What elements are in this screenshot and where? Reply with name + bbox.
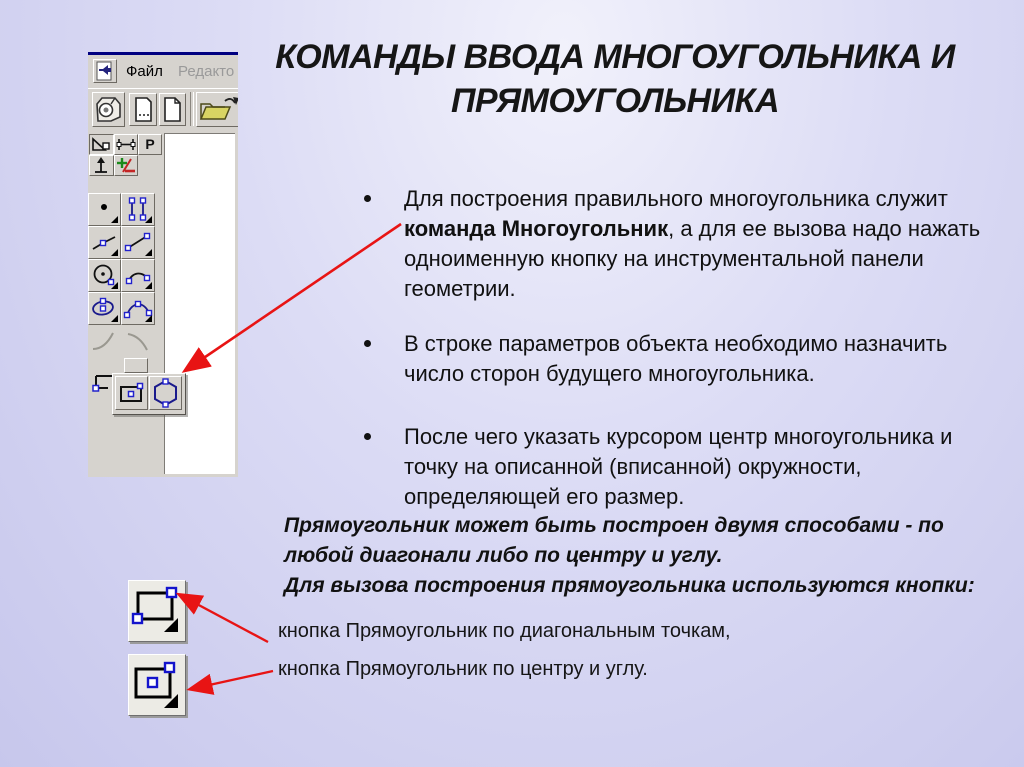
plus-minus-icon[interactable]	[114, 155, 138, 176]
rectangle-by-diagonal-points-icon	[129, 581, 183, 639]
polygon-icon[interactable]	[149, 376, 182, 410]
kompas-document-icon[interactable]	[93, 59, 117, 83]
bullet-dot	[364, 195, 371, 202]
bullet-dot	[364, 433, 371, 440]
note-line-2: Для вызова построения прямоугольника исп…	[284, 571, 1006, 601]
flyout-stub	[124, 358, 148, 373]
arc-icon[interactable]	[121, 259, 155, 292]
new-sheet-icon[interactable]	[159, 93, 186, 126]
fillet-icon[interactable]	[88, 325, 121, 358]
curve-icon[interactable]	[121, 292, 155, 325]
p-letter-icon[interactable]: P	[138, 134, 162, 155]
caption-diagonal-button: кнопка Прямоугольник по диагональным точ…	[278, 620, 731, 643]
bullet-polygon-command: Для построения правильного многоугольник…	[358, 184, 998, 304]
kompas-screenshot: Файл Редакто	[88, 52, 238, 477]
bullet-text: Для построения правильного многоугольник…	[404, 186, 980, 301]
rectangle-by-diagonal-points-button[interactable]	[128, 580, 186, 642]
standard-toolbar	[88, 88, 238, 131]
caption-center-button: кнопка Прямоугольник по центру и углу.	[278, 658, 648, 681]
menu-item-edit[interactable]: Редакто	[178, 63, 234, 80]
toolbar-separator	[190, 92, 194, 126]
bullet-text: После чего указать курсором центр многоу…	[404, 424, 952, 509]
note-line-1: Прямоугольник может быть построен двумя …	[284, 511, 1006, 571]
arrow-to-center-button	[191, 671, 273, 689]
arrow-to-diagonal-button	[180, 595, 268, 642]
bullet-parameters: В строке параметров объекта необходимо н…	[358, 329, 998, 389]
menu-bar: Файл Редакто	[88, 55, 238, 88]
segment-icon[interactable]	[121, 226, 155, 259]
rectangle-by-center-angle-button[interactable]	[128, 654, 186, 716]
triangle-ruler-icon[interactable]	[89, 134, 114, 155]
chamfer-icon[interactable]	[121, 325, 155, 358]
polyline-icon[interactable]	[88, 226, 121, 259]
parallel-segments-icon[interactable]	[121, 193, 155, 226]
ellipse-icon[interactable]	[88, 292, 121, 325]
drawing-canvas[interactable]	[164, 133, 235, 474]
circle-icon[interactable]	[88, 259, 121, 292]
measure-icon[interactable]	[114, 134, 138, 155]
geometry-flyout	[112, 373, 186, 415]
bullet-center-point: После чего указать курсором центр многоу…	[358, 422, 998, 512]
rectangle-note: Прямоугольник может быть построен двумя …	[284, 511, 1006, 601]
rectangle-button-partial[interactable]	[88, 362, 114, 400]
bullet-dot	[364, 340, 371, 347]
page-title: КОМАНДЫ ВВОДА МНОГОУГОЛЬНИКА И ПРЯМОУГОЛ…	[225, 36, 1005, 123]
bullet-text: В строке параметров объекта необходимо н…	[404, 331, 947, 386]
new-document-icon[interactable]	[129, 93, 157, 126]
open-folder-icon[interactable]	[196, 92, 238, 127]
point-icon[interactable]	[88, 193, 121, 226]
kompas-cube-icon[interactable]	[92, 92, 125, 127]
menu-item-file[interactable]: Файл	[126, 63, 163, 80]
slide: КОМАНДЫ ВВОДА МНОГОУГОЛЬНИКА И ПРЯМОУГОЛ…	[0, 0, 1024, 767]
vertical-arrow-icon[interactable]	[89, 155, 114, 176]
rectangle-by-center-icon[interactable]	[115, 376, 148, 410]
rectangle-by-center-and-angle-icon	[129, 655, 183, 713]
